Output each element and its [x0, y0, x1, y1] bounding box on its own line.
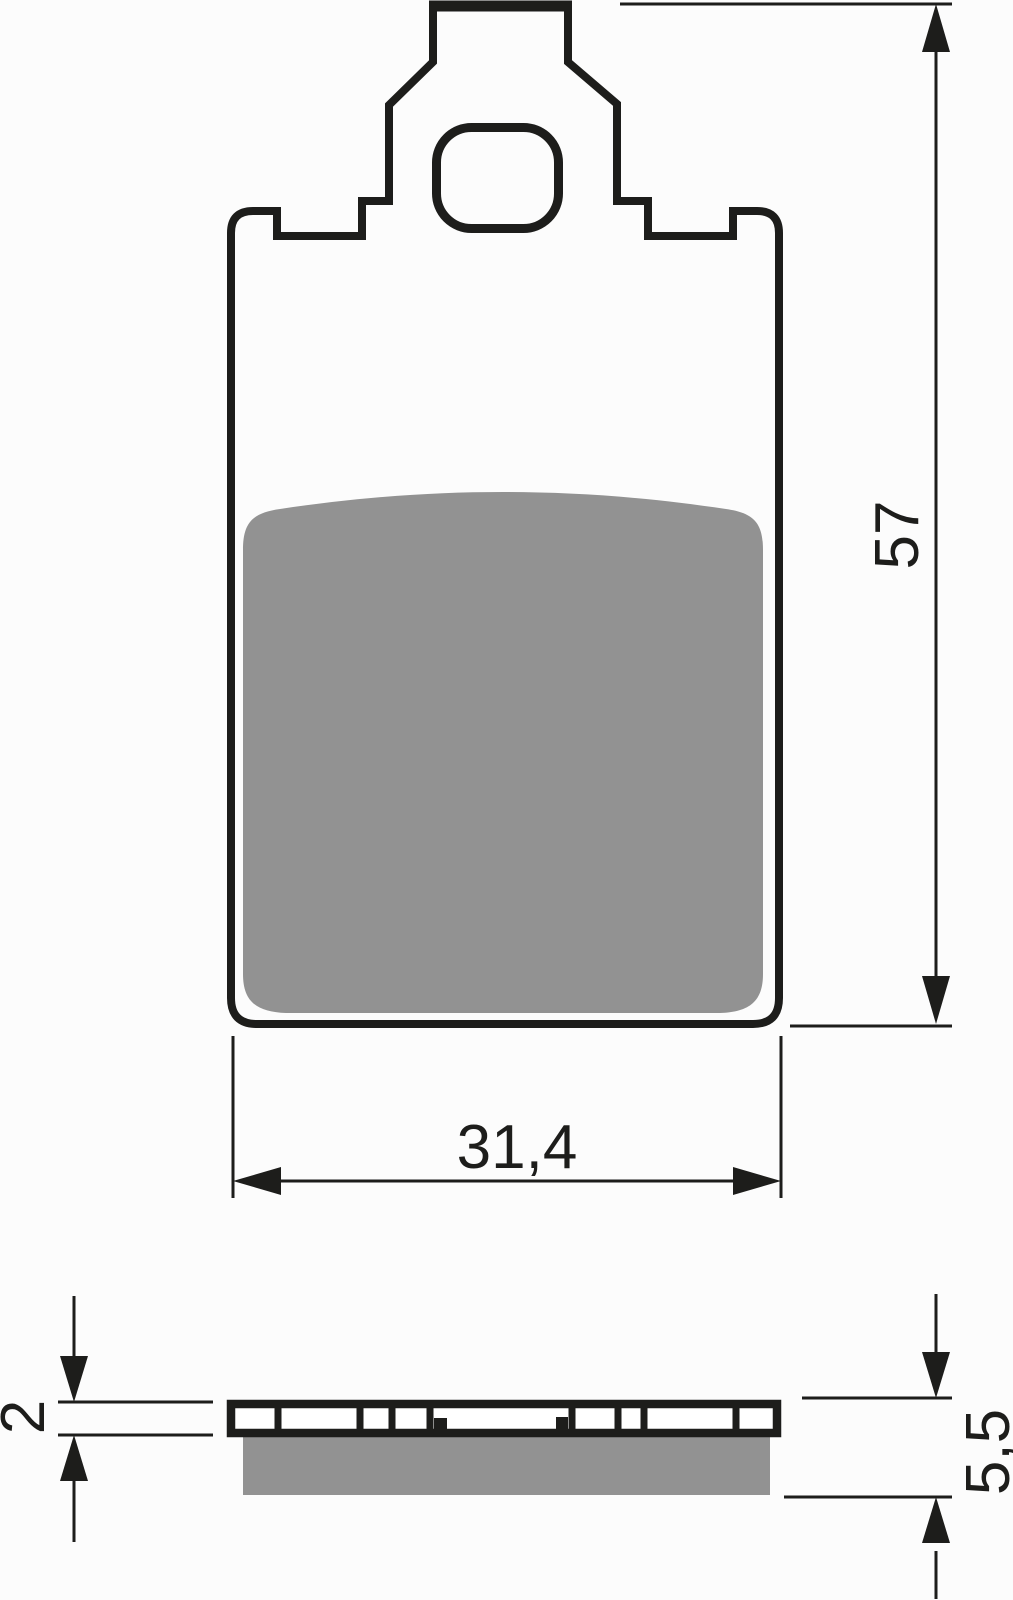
width-dimension-label: 31,4 [457, 1113, 578, 1182]
backplate-side [231, 1404, 777, 1433]
height-dimension-label: 57 [863, 501, 932, 570]
friction-material-side [243, 1437, 770, 1495]
side-view [231, 1402, 777, 1495]
friction-material-front [243, 492, 763, 1013]
brake-pad-technical-drawing: 57 31,4 2 5,5 [0, 0, 1013, 1600]
backplate-thickness-label: 2 [0, 1400, 58, 1434]
total-thickness-label: 5,5 [954, 1409, 1013, 1495]
